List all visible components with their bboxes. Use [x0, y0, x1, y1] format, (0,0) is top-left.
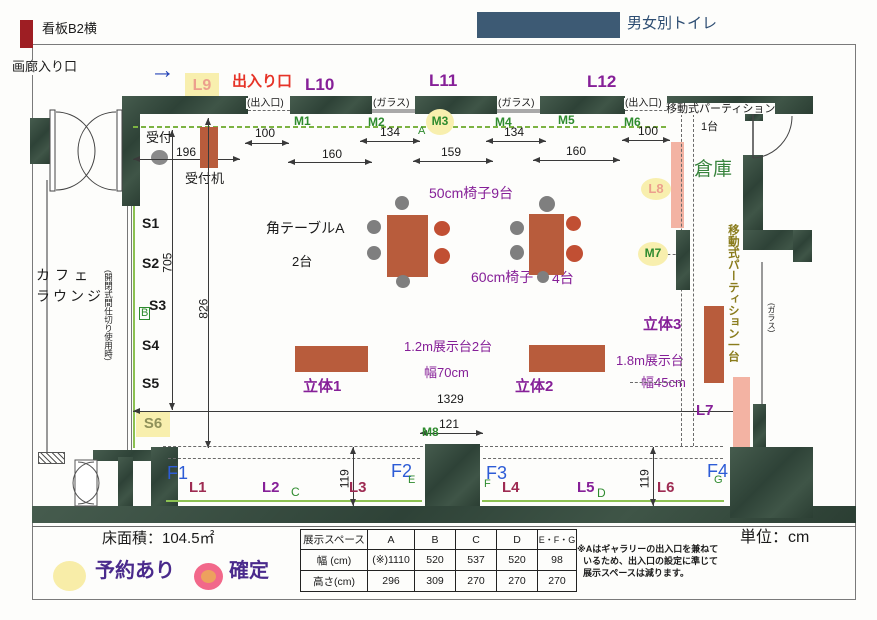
mobile-partition-vertical-label: 移動式パーティション一台 — [726, 224, 739, 384]
dim-arrow-1329 — [133, 411, 745, 412]
legend-reserved-label: 予約あり — [95, 560, 175, 582]
label-l7: L7 — [696, 403, 714, 420]
dim-arrow-159 — [413, 161, 493, 162]
dim-159: 159 — [441, 146, 461, 159]
right-corner-block — [730, 447, 813, 518]
entrance-exit-label: 出入り口 — [232, 74, 292, 91]
dim-arrow-100-right — [622, 140, 670, 141]
dim-arrow-196 — [133, 159, 240, 160]
spec-cell: 270 — [497, 571, 538, 592]
stand12-label: 1.2m展示台2台 — [404, 340, 492, 355]
direction-arrow-icon: → — [150, 56, 175, 84]
spec-header-cell: E・F・G — [538, 530, 577, 550]
label-l10: L10 — [305, 75, 334, 94]
dim-arrow-160-left — [288, 162, 372, 163]
label-l1: L1 — [189, 480, 207, 497]
zone-c-label: C — [291, 486, 300, 499]
zone-d-label: D — [597, 487, 606, 500]
label-l2: L2 — [262, 480, 280, 497]
chair-gray — [396, 275, 410, 288]
rittai3-label: 立体3 — [643, 317, 681, 334]
gallery-entrance-label: 画廊入り口 — [10, 60, 79, 75]
signboard-label: 看板B2横 — [42, 22, 97, 37]
partition-usage-note: (開閉式間仕切り使用時) — [103, 270, 113, 415]
label-f1: F1 — [167, 463, 188, 483]
dim-arrow-100-left — [245, 143, 289, 144]
chair-red — [434, 248, 450, 264]
label-l9: L9 — [193, 77, 212, 95]
mobile-partition-count: 1台 — [701, 121, 718, 133]
legend-reserved-swatch — [53, 561, 86, 591]
exhibition-spec-table: 展示スペース A B C D E・F・G 幅 (cm) (※)1110 520 … — [300, 529, 577, 592]
glass-sill-2 — [497, 109, 540, 113]
cafe-label-2: ラウンジ — [36, 289, 104, 305]
storage-label: 倉庫 — [694, 159, 732, 180]
dim-826: 826 — [197, 289, 210, 329]
dim-arrow-134-right — [486, 141, 546, 142]
dim-line-119-left — [353, 447, 354, 506]
chairs60-label: 60cm椅子 — [471, 270, 533, 286]
cafe-label-1: カフェ — [36, 268, 93, 284]
label-l3: L3 — [349, 480, 367, 497]
m7-partition-wall — [676, 230, 690, 290]
spec-header-cell: 展示スペース — [301, 530, 368, 550]
label-s5: S5 — [142, 376, 159, 392]
note-line-1: ※Aはギャラリーの出入口を兼ねて — [577, 544, 718, 554]
label-l5: L5 — [577, 480, 595, 497]
dim-705: 705 — [161, 243, 174, 283]
reception-desk-label: 受付机 — [185, 172, 224, 187]
chair-gray — [537, 271, 549, 283]
unit-label: 単位：cm — [740, 529, 809, 547]
zone-a-label: A — [418, 125, 425, 137]
rittai1-label: 立体1 — [303, 379, 341, 396]
rittai2-stand — [529, 345, 605, 372]
dim-100-left: 100 — [255, 127, 275, 140]
table-a-2 — [529, 214, 564, 275]
dim-196: 196 — [176, 146, 196, 159]
table-a-count: 2台 — [292, 255, 312, 270]
highlight-s6: S6 — [136, 411, 170, 437]
rittai2-label: 立体2 — [515, 379, 553, 396]
gap-glass2-label: (ガラス) — [497, 98, 535, 109]
gap-glass1-label: (ガラス) — [372, 98, 410, 109]
spec-cell: 270 — [538, 571, 577, 592]
wall-top-2 — [290, 96, 372, 114]
wall-top-1 — [122, 96, 248, 114]
dim-134-left: 134 — [380, 126, 400, 139]
spec-cell: (※)1110 — [368, 550, 415, 571]
stand18-width: 幅45cm — [641, 376, 686, 391]
rittai3-stand — [704, 306, 724, 383]
dim-119-right: 119 — [638, 460, 651, 498]
label-l12: L12 — [587, 72, 616, 91]
toilet-swatch — [477, 12, 620, 38]
stand18-label: 1.8m展示台 — [616, 354, 684, 369]
pink-strip-l8 — [671, 142, 684, 228]
highlight-m3: M3 — [426, 109, 454, 135]
wall-top-4 — [540, 96, 625, 114]
dim-arrow-134-left — [360, 141, 420, 142]
chair-gray — [539, 196, 555, 212]
dim-line-826 — [208, 118, 209, 448]
label-m7: M7 — [645, 247, 662, 260]
alcove-inner-dash-1 — [168, 458, 420, 459]
table-a-1 — [387, 215, 428, 277]
alcove-inner-dash-2 — [483, 458, 723, 459]
zone-e-label: E — [408, 474, 415, 486]
spec-cell: 296 — [368, 571, 415, 592]
spec-header-cell: C — [456, 530, 497, 550]
label-l8: L8 — [648, 182, 663, 197]
spec-cell: 520 — [415, 550, 456, 571]
chair-gray — [367, 220, 381, 234]
label-s1: S1 — [142, 216, 159, 232]
highlight-l9: L9 — [185, 73, 219, 98]
wall-top-3 — [415, 96, 497, 114]
zone-f-label: F — [484, 478, 491, 490]
legend-confirmed-label: 確定 — [229, 560, 269, 582]
zone-g-label: G — [714, 474, 723, 486]
alcove-green-line-1 — [166, 500, 422, 502]
rittai1-stand — [295, 346, 368, 372]
spec-header-cell: B — [415, 530, 456, 550]
alcove-opening-dash-2 — [480, 446, 723, 447]
dim-1329: 1329 — [437, 393, 464, 406]
label-l6: L6 — [657, 480, 675, 497]
cafe-wall-line — [46, 180, 48, 452]
label-m8: M8 — [422, 426, 439, 439]
label-s6: S6 — [144, 416, 162, 433]
spec-cell: 98 — [538, 550, 577, 571]
label-l11: L11 — [429, 71, 457, 90]
reception-chair — [151, 150, 168, 165]
note-line-2: いるため、出入口の設定に準じて — [583, 556, 718, 566]
label-s3: S3 — [149, 298, 166, 314]
spec-header-cell: A — [368, 530, 415, 550]
floor-plan-canvas: 看板B2横 画廊入り口 → L9 出入り口 男女別トイレ L10 L11 L12… — [0, 0, 877, 620]
spec-cell: 270 — [456, 571, 497, 592]
center-pillar — [425, 444, 480, 506]
entrance-gap-dash-1 — [248, 110, 290, 111]
toilet-pillar — [118, 457, 133, 507]
partition-line-inner — [131, 206, 132, 450]
chair-red — [566, 245, 583, 262]
wall-left-stub — [30, 118, 50, 164]
floor-area-label: 床面積：104.5㎡ — [102, 531, 215, 548]
chairs50-label: 50cm椅子9台 — [429, 186, 513, 202]
storage-door-tab — [745, 114, 763, 121]
chair-gray — [510, 221, 524, 235]
hatch-wall — [38, 452, 65, 464]
toilet-label: 男女別トイレ — [627, 16, 717, 33]
label-m5: M5 — [558, 114, 575, 127]
wall-neck — [753, 404, 766, 447]
chair-gray — [395, 196, 409, 210]
stand-position-dash — [630, 382, 681, 383]
label-s4: S4 — [142, 338, 159, 354]
dim-160-left: 160 — [322, 148, 342, 161]
wall-left-vertical — [122, 96, 140, 206]
signboard-swatch — [20, 20, 33, 48]
spec-row-label: 幅 (cm) — [301, 550, 368, 571]
stand12-width: 幅70cm — [424, 366, 469, 381]
partition-line-outer — [127, 206, 128, 450]
spec-row-label: 高さ(cm) — [301, 571, 368, 592]
zone-b-label: B — [139, 307, 150, 320]
wall-storage-step — [793, 230, 812, 262]
alcove-opening-dash-1 — [163, 446, 423, 447]
pink-strip-l7 — [733, 377, 750, 447]
label-m1: M1 — [294, 115, 311, 128]
legend-confirmed-swatch — [194, 563, 223, 590]
glass-wall-line — [761, 262, 763, 404]
spec-header-cell: D — [497, 530, 538, 550]
spec-cell: 537 — [456, 550, 497, 571]
label-l4: L4 — [502, 480, 520, 497]
glass-sill-1 — [372, 109, 415, 113]
wall-storage-v — [743, 155, 763, 230]
spec-cell: 309 — [415, 571, 456, 592]
label-s2: S2 — [142, 256, 159, 272]
entrance-gap-dash-2 — [625, 110, 667, 111]
plan-bottom-divider — [32, 526, 856, 527]
table-a-label: 角テーブルA — [266, 221, 345, 237]
dim-line-119-right — [653, 447, 654, 506]
chair-red — [434, 221, 450, 236]
dim-134-right: 134 — [504, 126, 524, 139]
note-line-3: 展示スペースは減ります。 — [583, 568, 689, 578]
reception-desk — [200, 127, 218, 168]
gap-entrance1-label: (出入口) — [246, 98, 285, 109]
dim-160-right: 160 — [566, 145, 586, 158]
chair-red — [566, 216, 581, 231]
chair-gray — [367, 246, 381, 260]
gap-entrance2-label: (出入口) — [624, 98, 663, 109]
dim-121: 121 — [439, 418, 459, 431]
dim-100-right: 100 — [638, 125, 658, 138]
highlight-m7: M7 — [638, 242, 668, 266]
dim-arrow-160-right — [533, 160, 620, 161]
highlight-l8: L8 — [641, 178, 671, 200]
chair-gray — [510, 245, 524, 260]
label-m3: M3 — [432, 115, 449, 128]
spec-cell: 520 — [497, 550, 538, 571]
glass-side-label: (ガラス) — [766, 303, 775, 363]
